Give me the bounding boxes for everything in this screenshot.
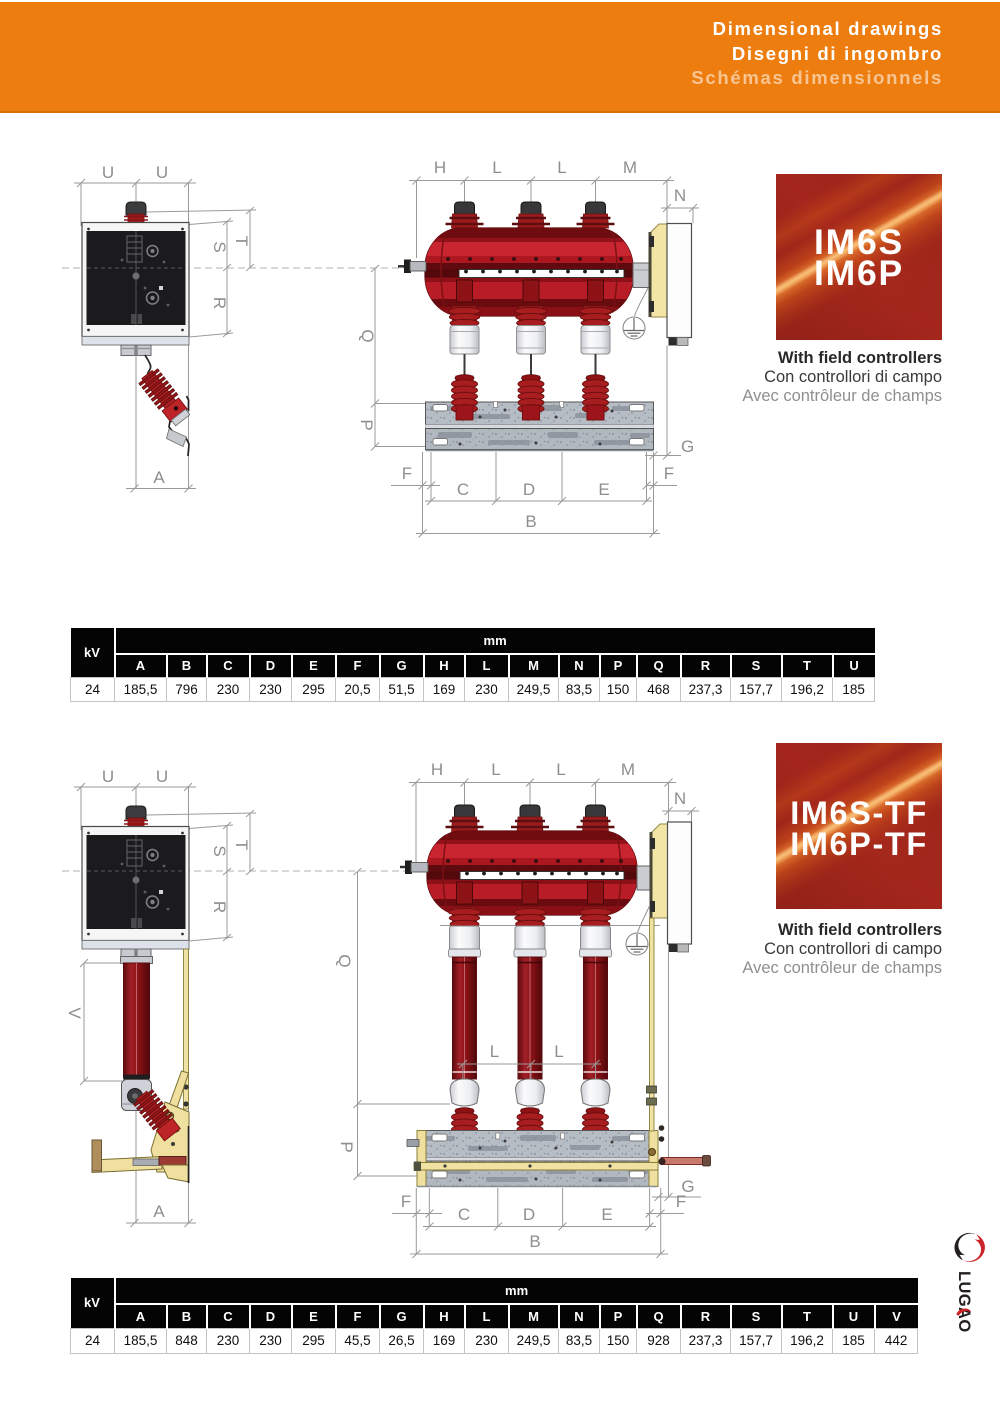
svg-text:C: C (458, 1205, 470, 1224)
svg-text:F: F (401, 1192, 411, 1211)
svg-text:N: N (674, 186, 686, 205)
svg-text:L: L (554, 1042, 563, 1061)
svg-text:T: T (232, 840, 251, 850)
svg-text:P: P (337, 1141, 356, 1152)
svg-text:IM6P: IM6P (814, 253, 904, 293)
svg-text:L: L (490, 1042, 499, 1061)
svg-text:Q: Q (335, 954, 354, 967)
svg-text:S: S (210, 241, 229, 252)
svg-text:L: L (557, 158, 566, 177)
svg-text:IM6P-TF: IM6P-TF (790, 826, 928, 862)
svg-text:B: B (525, 512, 536, 531)
svg-text:H: H (434, 158, 446, 177)
svg-text:L: L (491, 760, 500, 779)
svg-text:L: L (492, 158, 501, 177)
svg-text:D: D (523, 1205, 535, 1224)
svg-text:U: U (156, 767, 168, 786)
svg-text:R: R (210, 297, 229, 309)
svg-text:G: G (681, 437, 694, 456)
svg-text:E: E (601, 1205, 612, 1224)
svg-text:LUGAO: LUGAO (955, 1271, 973, 1333)
svg-text:M: M (621, 760, 635, 779)
svg-text:C: C (457, 480, 469, 499)
svg-text:L: L (556, 760, 565, 779)
svg-text:R: R (210, 901, 229, 913)
svg-text:S: S (210, 845, 229, 856)
svg-text:P: P (357, 419, 376, 430)
svg-text:T: T (232, 236, 251, 246)
svg-text:F: F (676, 1192, 686, 1211)
svg-text:U: U (102, 163, 114, 182)
svg-text:U: U (102, 767, 114, 786)
svg-text:D: D (523, 480, 535, 499)
svg-text:A: A (153, 1202, 165, 1221)
svg-text:M: M (623, 158, 637, 177)
svg-text:Q: Q (358, 329, 377, 342)
svg-text:E: E (598, 480, 609, 499)
svg-text:V: V (65, 1007, 84, 1019)
svg-text:F: F (664, 464, 674, 483)
svg-text:N: N (674, 789, 686, 808)
svg-text:F: F (402, 464, 412, 483)
svg-text:H: H (431, 760, 443, 779)
svg-text:B: B (529, 1232, 540, 1251)
svg-text:A: A (153, 468, 165, 487)
svg-text:U: U (156, 163, 168, 182)
